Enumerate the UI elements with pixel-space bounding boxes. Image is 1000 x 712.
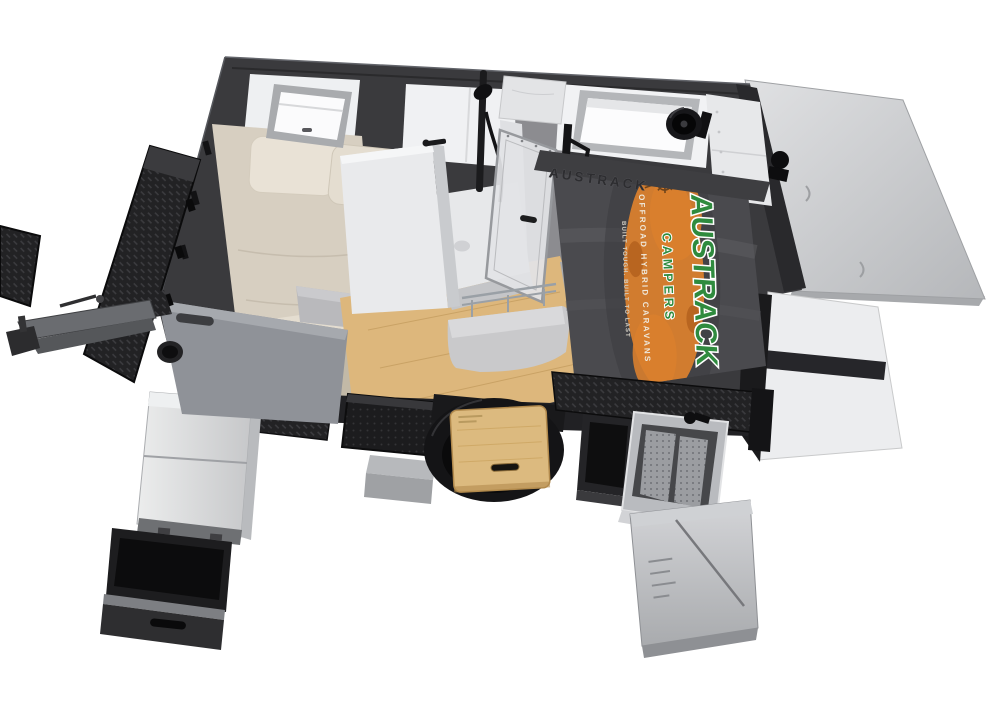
caravan-cutaway-scene: AUSTRACK CAMPERS OFFROAD HYBRID CARAVANS… [0,0,1000,712]
jockey-handle [96,295,104,303]
fridge-latch [210,533,222,540]
fan-hub [681,121,688,128]
slide-out-kitchen [618,388,774,658]
toolbox-lid-flap [0,226,40,306]
shower-front-wall [340,144,448,314]
bed-window [266,84,352,148]
water-filler-cap-inner [162,346,178,359]
bed-window-latch [302,128,312,132]
splashback-panel [499,76,566,124]
caravan-render: AUSTRACK CAMPERS OFFROAD HYBRID CARAVANS… [0,0,1000,712]
storage-drawer-left [100,528,232,650]
kitchen-mount-post [748,388,774,452]
spare-wheel-table [424,394,566,502]
table-handle-slot [491,463,519,471]
drawer-cavity [585,422,628,488]
fold-out-table [450,406,550,493]
roof-latch [771,151,789,169]
table-top [450,406,550,493]
logo-wordmark: AUSTRACK [684,193,723,368]
shower-drain [454,241,470,252]
handbrake-lever [60,296,96,306]
fridge-latch [158,527,170,534]
cabin-fan [666,108,712,140]
